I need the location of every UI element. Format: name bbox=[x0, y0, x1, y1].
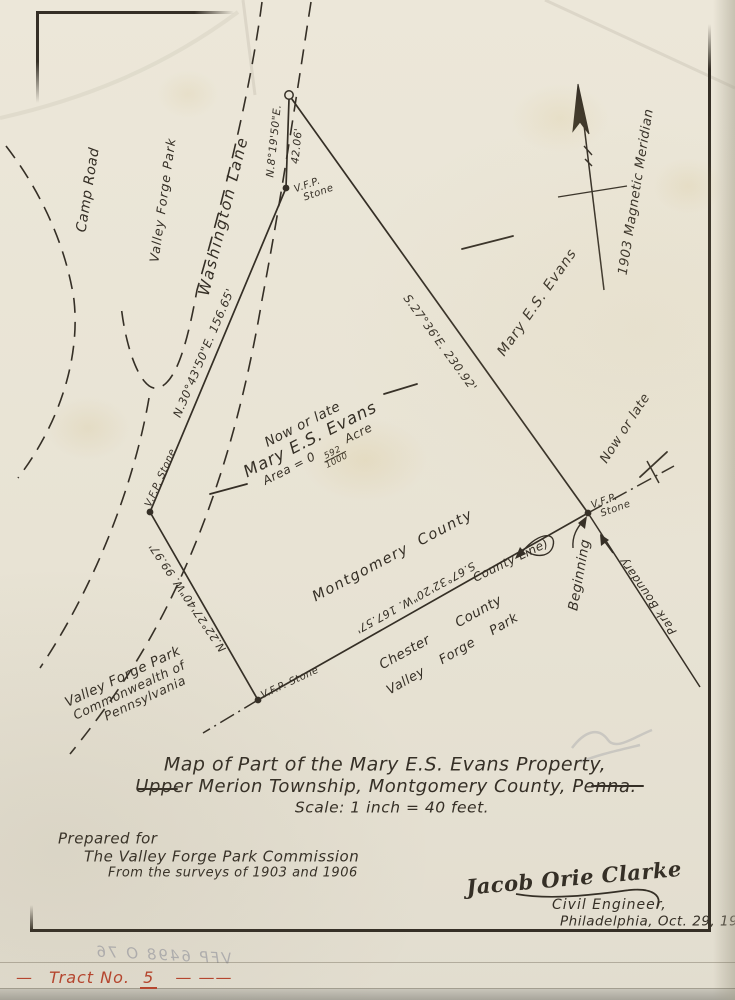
tract-number: 5 bbox=[140, 968, 157, 989]
paper-right-edge bbox=[713, 0, 735, 1000]
open-corner-a bbox=[285, 91, 293, 99]
paper-bottom-edge bbox=[0, 989, 735, 1000]
signature-title: Civil Engineer, bbox=[552, 898, 667, 914]
stone-b bbox=[283, 185, 290, 192]
border-right bbox=[708, 24, 711, 931]
map-scale: Scale: 1 inch = 40 feet. bbox=[295, 799, 489, 816]
washington-lane-sw-edge bbox=[40, 398, 149, 668]
tract-number-annotation: — Tract No. 5 — —— bbox=[16, 968, 232, 987]
road-dashed-lines bbox=[6, 2, 311, 754]
stone-d bbox=[255, 697, 262, 704]
border-left bbox=[36, 11, 39, 103]
border-bottom bbox=[30, 929, 711, 932]
washington-lane-west-edge bbox=[121, 2, 262, 388]
prepared-for-line1: Prepared for bbox=[58, 831, 157, 848]
paper-edge-line bbox=[0, 988, 735, 989]
map-title-line1: Map of Part of the Mary E.S. Evans Prope… bbox=[164, 754, 606, 775]
prepared-for-line2: The Valley Forge Park Commission bbox=[84, 849, 359, 866]
paper-creases bbox=[0, 0, 735, 118]
line-north-segment bbox=[286, 99, 289, 188]
stone-e-beginning bbox=[585, 510, 592, 517]
tract-label: Tract No. bbox=[49, 968, 130, 987]
map-sheet: Camp Road Valley Forge Park Washington L… bbox=[0, 0, 735, 1000]
map-title-line2: Upper Merion Township, Montgomery County… bbox=[135, 777, 636, 797]
border-corner-stub bbox=[30, 905, 33, 931]
stone-c bbox=[147, 509, 154, 516]
park-boundary-arrow bbox=[600, 534, 613, 553]
camp-road-edge bbox=[6, 146, 75, 478]
border-top bbox=[36, 11, 234, 14]
paper-fold-line bbox=[0, 962, 735, 963]
prepared-for-line3: From the surveys of 1903 and 1906 bbox=[108, 867, 358, 882]
